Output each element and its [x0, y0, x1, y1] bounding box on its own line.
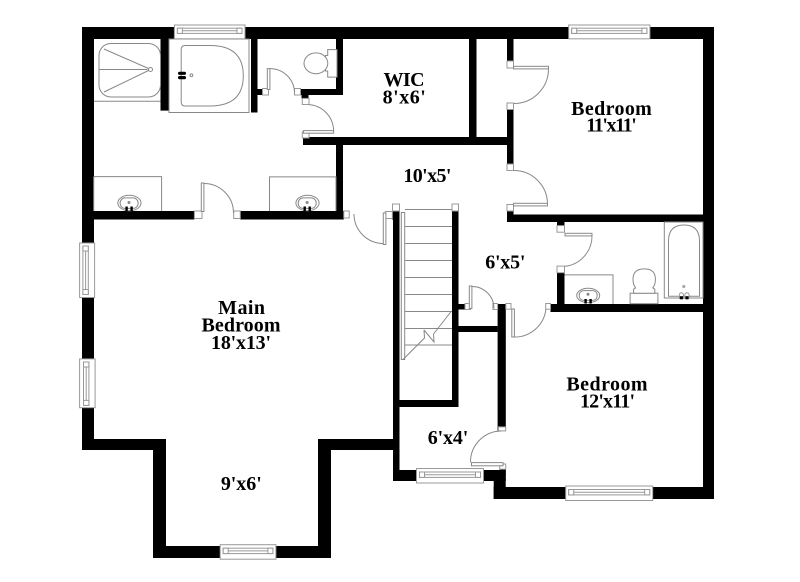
svg-text:6'x4': 6'x4'	[428, 427, 469, 449]
svg-text:12'x11': 12'x11'	[580, 391, 635, 413]
svg-text:8'x6': 8'x6'	[383, 87, 426, 109]
svg-text:10'x5': 10'x5'	[403, 165, 451, 187]
svg-text:6'x5': 6'x5'	[485, 251, 525, 273]
svg-text:18'x13': 18'x13'	[211, 332, 271, 354]
svg-text:11'x11': 11'x11'	[586, 115, 637, 137]
svg-text:9'x6': 9'x6'	[221, 473, 262, 495]
